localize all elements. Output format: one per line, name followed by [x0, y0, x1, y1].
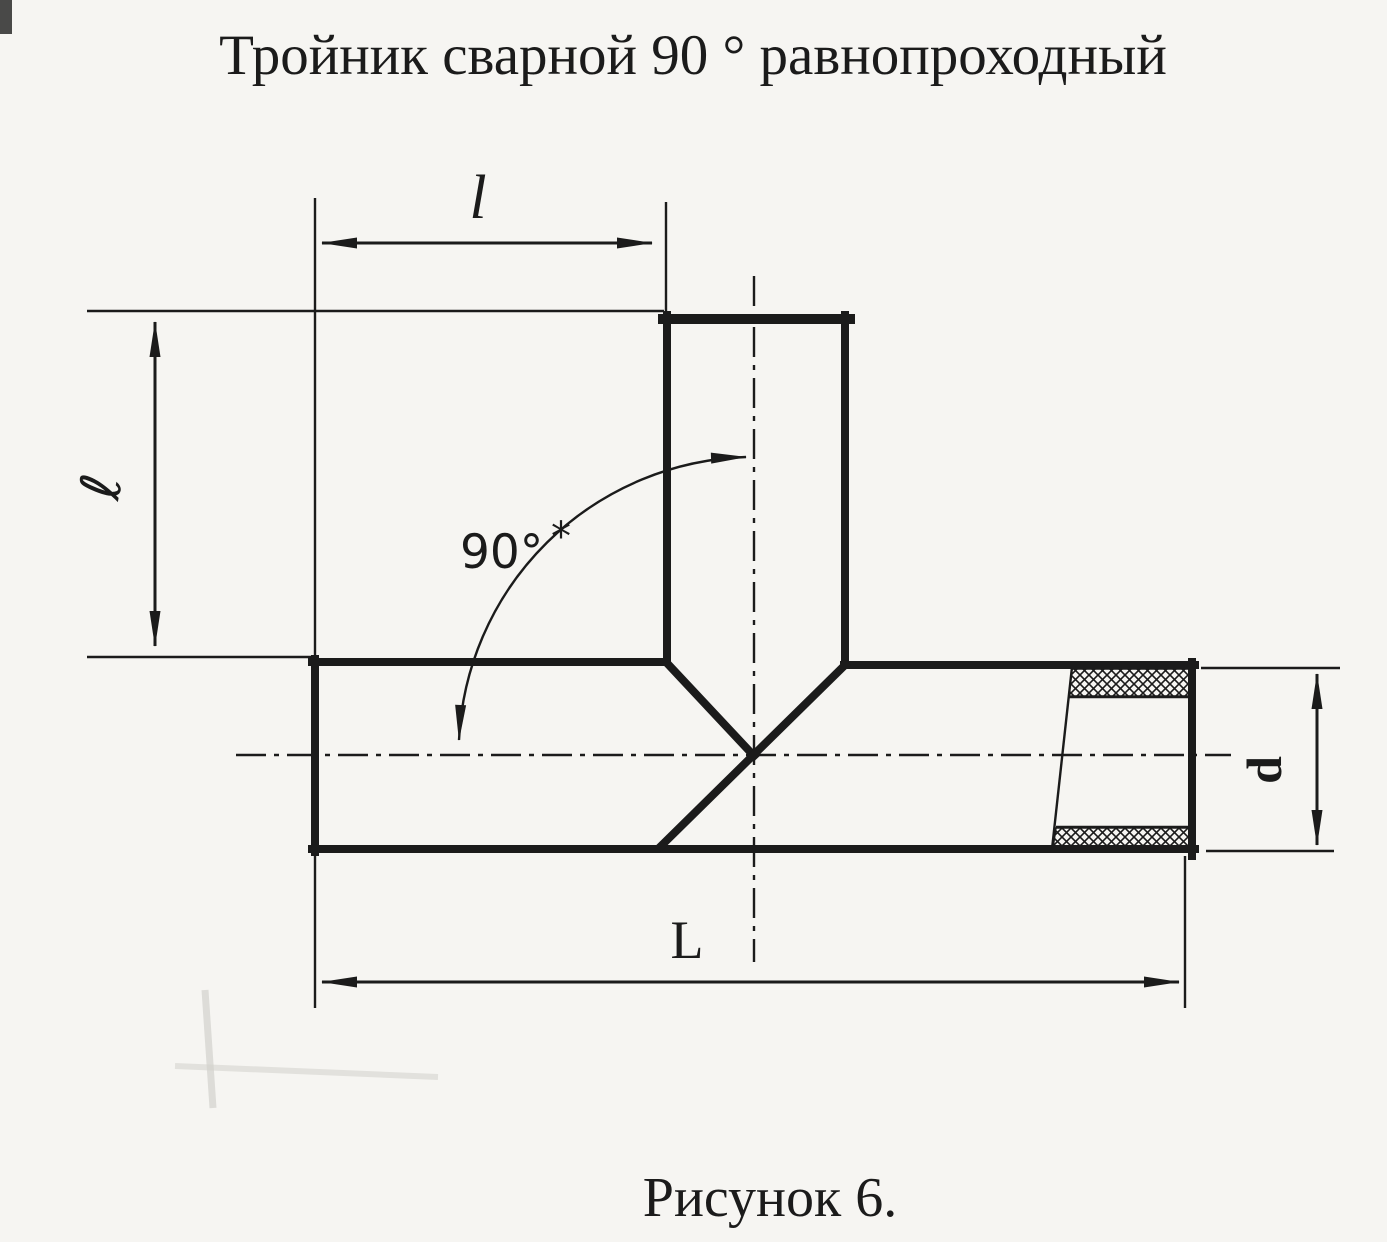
dimension-lines — [155, 243, 1317, 982]
tee-fitting-drawing: Тройник сварной 90 ° равнопроходный l ℓ … — [0, 0, 1387, 1242]
angle-footnote-star: * — [551, 514, 571, 560]
scanned-drawing-page: Тройник сварной 90 ° равнопроходный l ℓ … — [0, 0, 1387, 1242]
dim-label-angle: 90° — [460, 525, 543, 580]
dim-label-diameter: d — [1236, 756, 1292, 784]
scan-artifact — [205, 990, 213, 1108]
centerlines — [236, 276, 1231, 962]
scan-artifact — [175, 1066, 438, 1077]
pipe-wall-section — [1052, 667, 1189, 849]
dim-label-branch-height: ℓ — [68, 470, 136, 505]
dim-label-branch-offset: l — [469, 164, 486, 232]
page-title: Тройник сварной 90 ° равнопроходный — [219, 24, 1167, 87]
labels: Тройник сварной 90 ° равнопроходный l ℓ … — [68, 24, 1292, 1229]
scan-artifacts — [0, 0, 438, 1108]
weld-seam-left — [666, 662, 754, 756]
scan-artifact — [0, 0, 12, 34]
wall-section-top — [1069, 669, 1189, 696]
dim-label-overall-length: L — [671, 910, 704, 970]
figure-caption: Рисунок 6. — [643, 1167, 897, 1229]
